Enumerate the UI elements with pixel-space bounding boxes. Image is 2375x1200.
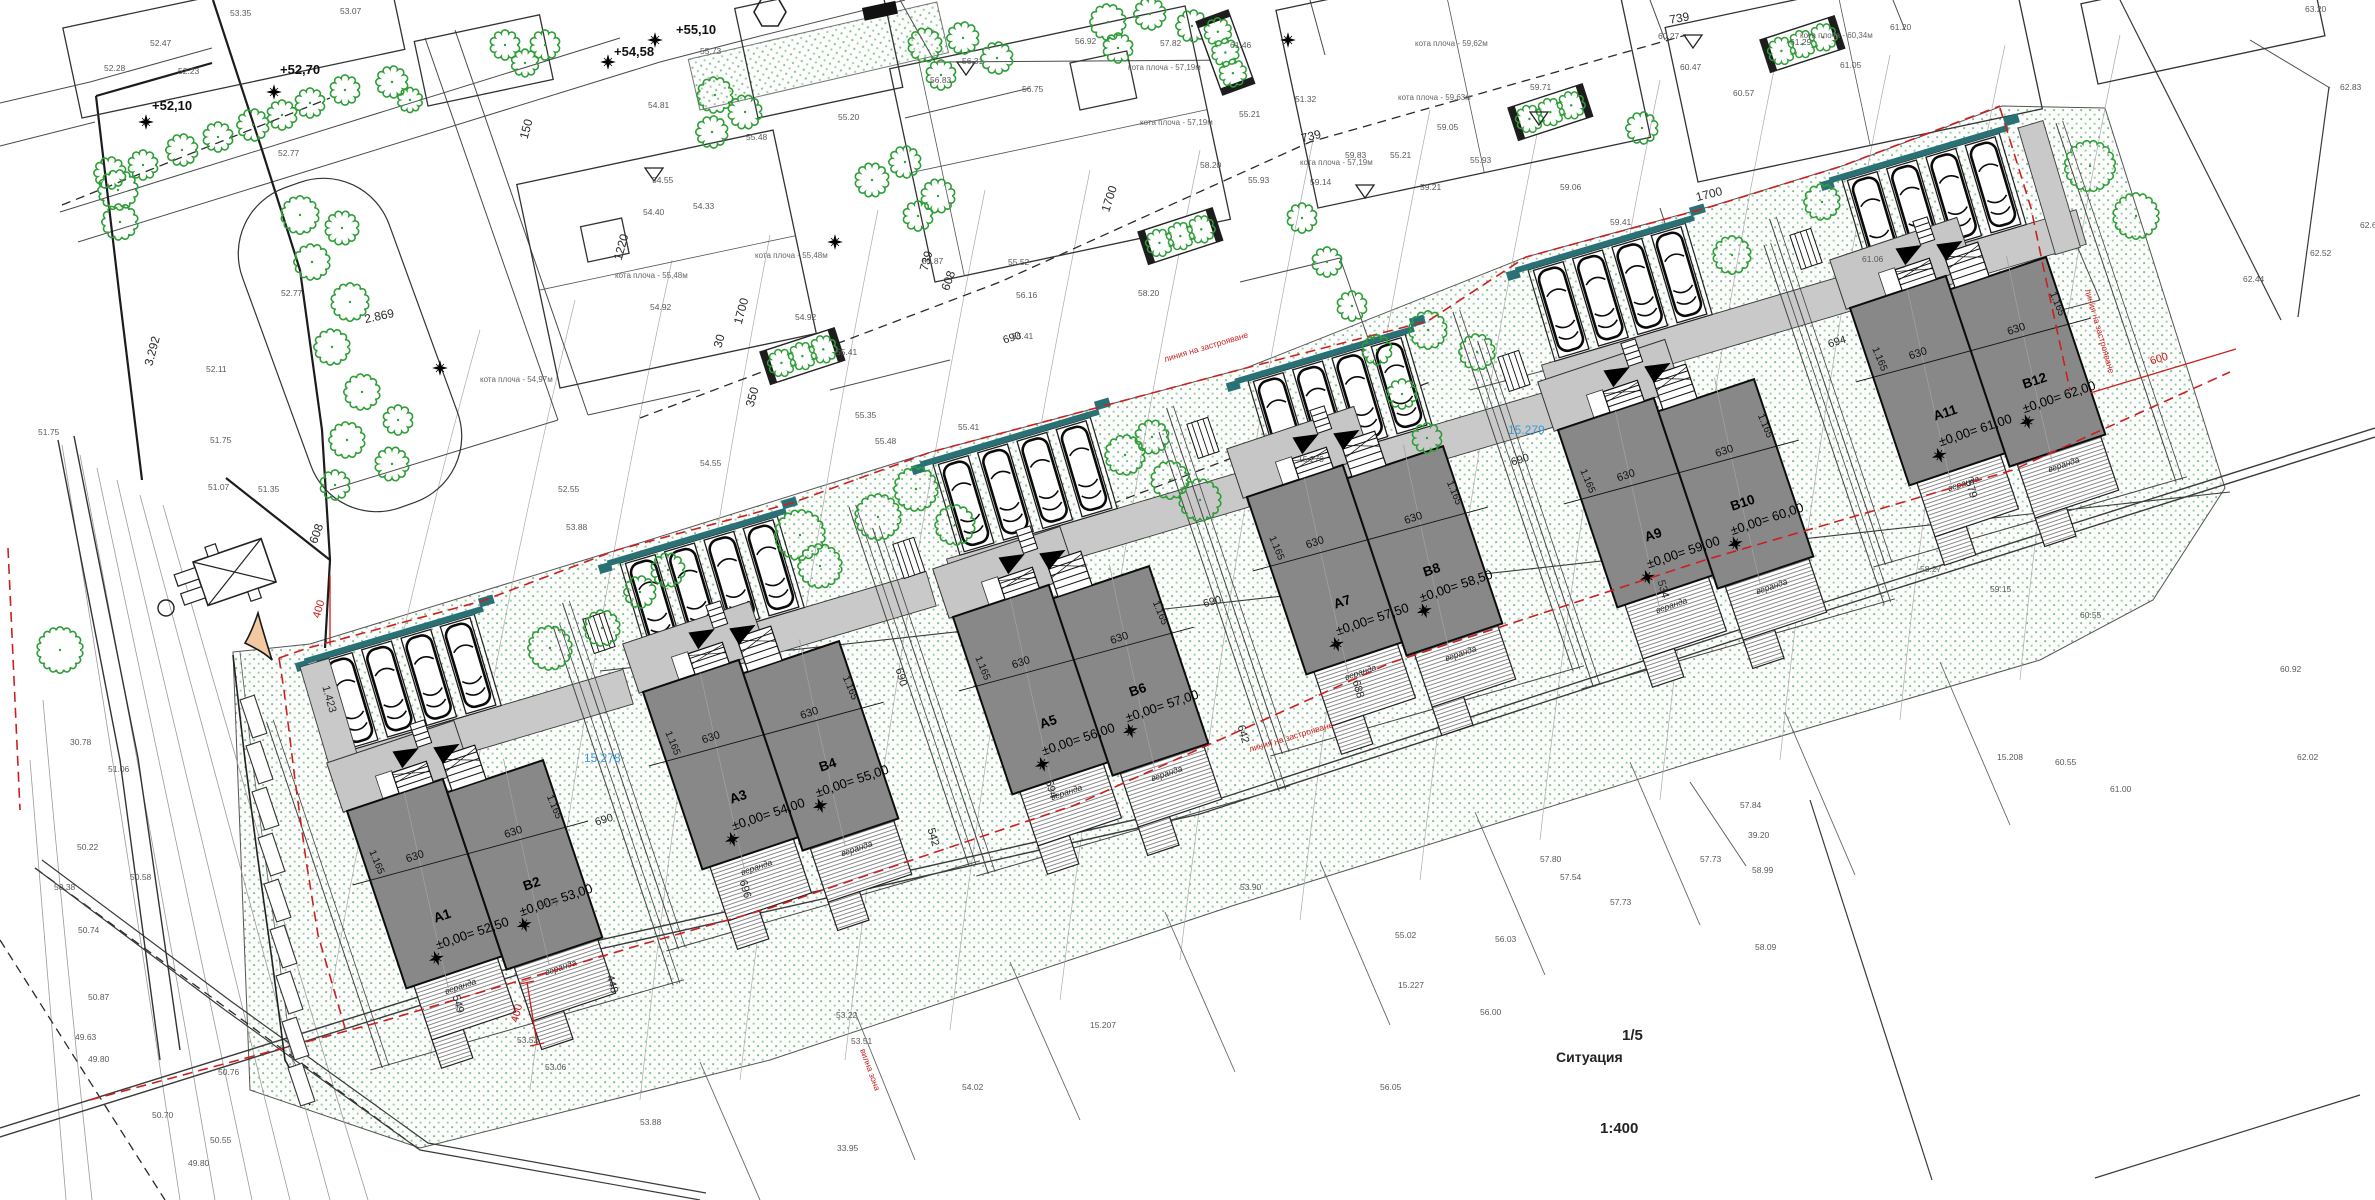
svg-text:1/5: 1/5	[1622, 1027, 1643, 1044]
svg-text:55.73: 55.73	[700, 46, 722, 56]
svg-text:54.40: 54.40	[643, 207, 665, 217]
svg-text:51.75: 51.75	[210, 435, 232, 445]
svg-text:15.208: 15.208	[1997, 752, 2023, 762]
svg-text:60.55: 60.55	[2055, 757, 2077, 767]
svg-text:59.71: 59.71	[1530, 82, 1552, 92]
svg-text:62.44: 62.44	[2243, 274, 2265, 284]
svg-text:59.15: 59.15	[1990, 584, 2012, 594]
svg-text:53.77: 53.77	[538, 898, 560, 908]
svg-text:кота плоча - 59,62м: кота плоча - 59,62м	[1415, 39, 1488, 48]
svg-text:57.80: 57.80	[1540, 854, 1562, 864]
svg-text:55.20: 55.20	[838, 112, 860, 122]
svg-text:55.35: 55.35	[855, 410, 877, 420]
svg-text:кота плоча - 55,48м: кота плоча - 55,48м	[755, 251, 828, 260]
svg-text:53.88: 53.88	[566, 522, 588, 532]
svg-text:54.92: 54.92	[795, 312, 817, 322]
svg-text:58.20: 58.20	[1200, 160, 1222, 170]
svg-text:56.00: 56.00	[1480, 1007, 1502, 1017]
svg-text:56.03: 56.03	[1495, 934, 1517, 944]
svg-text:58.99: 58.99	[1752, 865, 1774, 875]
svg-text:49.80: 49.80	[88, 1054, 110, 1064]
svg-text:кота плоча - 60,34м: кота плоча - 60,34м	[1800, 31, 1873, 40]
svg-text:62.83: 62.83	[2340, 82, 2362, 92]
svg-text:30.78: 30.78	[70, 737, 92, 747]
svg-text:59.14: 59.14	[1310, 177, 1332, 187]
svg-text:62.02: 62.02	[2297, 752, 2319, 762]
svg-text:60.47: 60.47	[1680, 62, 1702, 72]
svg-text:53.07: 53.07	[340, 6, 362, 16]
svg-text:55.93: 55.93	[1248, 175, 1270, 185]
svg-text:52.55: 52.55	[558, 484, 580, 494]
svg-text:60.57: 60.57	[1733, 88, 1755, 98]
svg-text:51.07: 51.07	[208, 482, 230, 492]
svg-text:60.55: 60.55	[2080, 610, 2102, 620]
svg-text:56.83: 56.83	[930, 75, 952, 85]
svg-text:55.48: 55.48	[746, 132, 768, 142]
svg-text:50.87: 50.87	[88, 992, 110, 1002]
svg-text:57.82: 57.82	[1160, 38, 1182, 48]
svg-text:55.48: 55.48	[875, 436, 897, 446]
svg-text:61.06: 61.06	[1862, 254, 1884, 264]
svg-text:кота плоча - 57,19м: кота плоча - 57,19м	[1300, 158, 1373, 167]
svg-text:57.54: 57.54	[1560, 872, 1582, 882]
svg-text:39.20: 39.20	[1748, 830, 1770, 840]
svg-text:59.21: 59.21	[1420, 182, 1442, 192]
svg-text:55.41: 55.41	[836, 347, 858, 357]
svg-text:56.31: 56.31	[962, 56, 984, 66]
svg-text:50.22: 50.22	[77, 842, 99, 852]
svg-text:+52,10: +52,10	[152, 98, 192, 113]
svg-text:51.35: 51.35	[258, 484, 280, 494]
svg-text:53.52: 53.52	[517, 1035, 539, 1045]
svg-text:51.32: 51.32	[1295, 94, 1317, 104]
svg-text:кота плоча - 57,19м: кота плоча - 57,19м	[1128, 63, 1201, 72]
svg-text:50.38: 50.38	[54, 882, 76, 892]
svg-text:52.28: 52.28	[104, 63, 126, 73]
svg-text:54.81: 54.81	[648, 100, 670, 110]
svg-text:50.74: 50.74	[78, 925, 100, 935]
svg-text:59.41: 59.41	[1610, 217, 1632, 227]
svg-text:50.58: 50.58	[130, 872, 152, 882]
svg-text:52.23: 52.23	[178, 66, 200, 76]
svg-text:+54,58: +54,58	[614, 44, 654, 59]
svg-text:54.55: 54.55	[700, 458, 722, 468]
svg-text:54.33: 54.33	[693, 201, 715, 211]
svg-text:52.11: 52.11	[206, 364, 227, 374]
svg-text:60.92: 60.92	[2280, 664, 2302, 674]
svg-text:+55,10: +55,10	[676, 22, 716, 37]
svg-text:55.52: 55.52	[1008, 257, 1030, 267]
svg-text:55.02: 55.02	[1395, 930, 1417, 940]
svg-text:49.80: 49.80	[188, 1158, 210, 1168]
svg-text:56.16: 56.16	[1016, 290, 1038, 300]
svg-text:61.46: 61.46	[1230, 40, 1252, 50]
svg-text:50.76: 50.76	[218, 1067, 240, 1077]
svg-text:кота плоча - 55,48м: кота плоча - 55,48м	[615, 271, 688, 280]
svg-text:53.22: 53.22	[836, 1010, 858, 1020]
svg-text:55.93: 55.93	[1470, 155, 1492, 165]
svg-text:57.84: 57.84	[1740, 800, 1762, 810]
svg-text:15.207: 15.207	[1090, 1020, 1116, 1030]
svg-text:53.90: 53.90	[1240, 882, 1262, 892]
svg-text:1:400: 1:400	[1600, 1120, 1638, 1137]
svg-text:58.20: 58.20	[1138, 288, 1160, 298]
svg-text:56.05: 56.05	[1380, 1082, 1402, 1092]
svg-text:54.02: 54.02	[962, 1082, 984, 1092]
svg-text:Ситуация: Ситуация	[1556, 1049, 1623, 1065]
svg-text:53.51: 53.51	[851, 1036, 873, 1046]
svg-text:61.05: 61.05	[1840, 60, 1862, 70]
svg-text:50.55: 50.55	[210, 1135, 232, 1145]
svg-text:15.227: 15.227	[1398, 980, 1424, 990]
svg-text:15.279: 15.279	[1298, 454, 1324, 464]
svg-text:51.06: 51.06	[108, 764, 130, 774]
svg-text:кота плоча - 54,97м: кота плоча - 54,97м	[480, 375, 553, 384]
svg-text:62.52: 62.52	[2310, 248, 2332, 258]
svg-text:55.21: 55.21	[1239, 109, 1261, 119]
svg-text:60.27: 60.27	[1658, 31, 1680, 41]
svg-text:кота плоча - 59,63м: кота плоча - 59,63м	[1398, 93, 1471, 102]
svg-text:63.20: 63.20	[2305, 4, 2327, 14]
svg-text:55.41: 55.41	[958, 422, 980, 432]
svg-text:58.27: 58.27	[1920, 564, 1942, 574]
svg-text:61.00: 61.00	[2110, 784, 2132, 794]
svg-text:+52,70: +52,70	[280, 62, 320, 77]
svg-text:59.05: 59.05	[1437, 122, 1459, 132]
svg-text:54.55: 54.55	[652, 175, 674, 185]
svg-text:49.63: 49.63	[75, 1032, 97, 1042]
svg-text:56.75: 56.75	[1022, 84, 1044, 94]
svg-text:52.77: 52.77	[278, 148, 300, 158]
svg-text:59.06: 59.06	[1560, 182, 1582, 192]
svg-text:кота плоча - 57,19м: кота плоча - 57,19м	[1140, 118, 1213, 127]
svg-text:61.20: 61.20	[1890, 22, 1912, 32]
svg-text:53.35: 53.35	[230, 8, 252, 18]
svg-text:58.09: 58.09	[1755, 942, 1777, 952]
svg-text:50.70: 50.70	[152, 1110, 174, 1120]
svg-text:62.62: 62.62	[2360, 220, 2375, 230]
svg-text:55.21: 55.21	[1390, 150, 1412, 160]
svg-text:52.47: 52.47	[150, 38, 172, 48]
svg-text:53.88: 53.88	[640, 1117, 662, 1127]
svg-text:51.75: 51.75	[38, 427, 60, 437]
svg-text:53.06: 53.06	[545, 1062, 567, 1072]
svg-text:15.279: 15.279	[1508, 423, 1545, 437]
svg-text:57.73: 57.73	[1610, 897, 1632, 907]
svg-text:54.92: 54.92	[650, 302, 672, 312]
svg-text:33.95: 33.95	[837, 1143, 859, 1153]
svg-text:15.278: 15.278	[584, 751, 621, 765]
svg-text:52.77: 52.77	[281, 288, 303, 298]
svg-text:56.92: 56.92	[1075, 36, 1097, 46]
svg-text:57.73: 57.73	[1700, 854, 1722, 864]
